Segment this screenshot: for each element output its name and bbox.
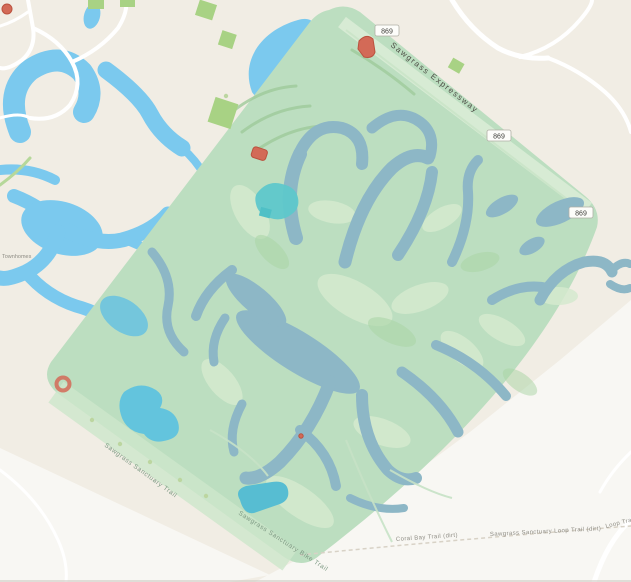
route-shield-text: 869 [381,29,393,36]
neighborhood-label: Townhomes [2,254,32,260]
route-shield-text: 869 [575,211,587,218]
route-shield: 869 [569,207,593,218]
map-tiles: 869 869 869 Sawgrass Expressway Sawgrass… [0,0,631,582]
map-canvas[interactable]: 869 869 869 Sawgrass Expressway Sawgrass… [0,0,631,582]
route-shield-text: 869 [493,134,505,141]
route-shield: 869 [487,130,511,141]
route-shield: 869 [375,25,399,36]
